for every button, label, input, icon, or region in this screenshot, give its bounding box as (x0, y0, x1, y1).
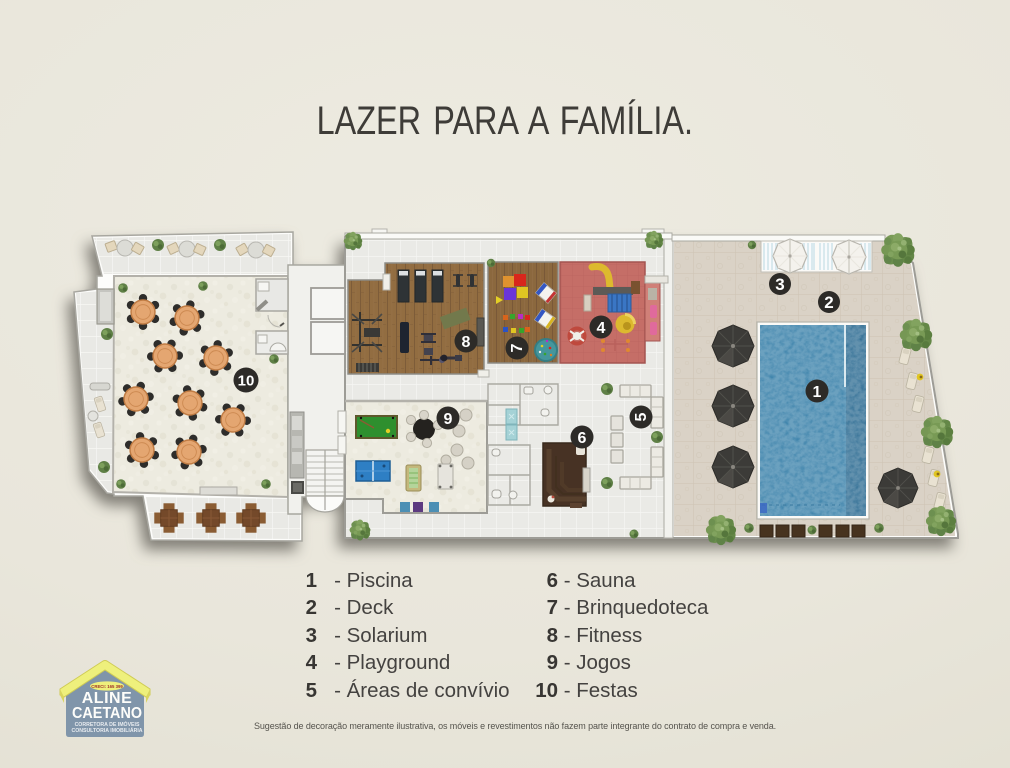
svg-text:8: 8 (462, 334, 471, 351)
svg-text:10: 10 (238, 373, 255, 390)
svg-text:2: 2 (824, 293, 833, 312)
svg-text:9: 9 (444, 411, 453, 428)
svg-text:4: 4 (597, 320, 606, 337)
svg-text:3: 3 (775, 275, 784, 294)
svg-text:1: 1 (813, 384, 822, 401)
svg-text:5: 5 (633, 412, 650, 421)
svg-text:7: 7 (509, 343, 526, 352)
svg-text:CRECI: 165 399: CRECI: 165 399 (91, 684, 123, 689)
svg-text:CAETANO: CAETANO (72, 705, 142, 722)
svg-text:6: 6 (578, 430, 587, 447)
